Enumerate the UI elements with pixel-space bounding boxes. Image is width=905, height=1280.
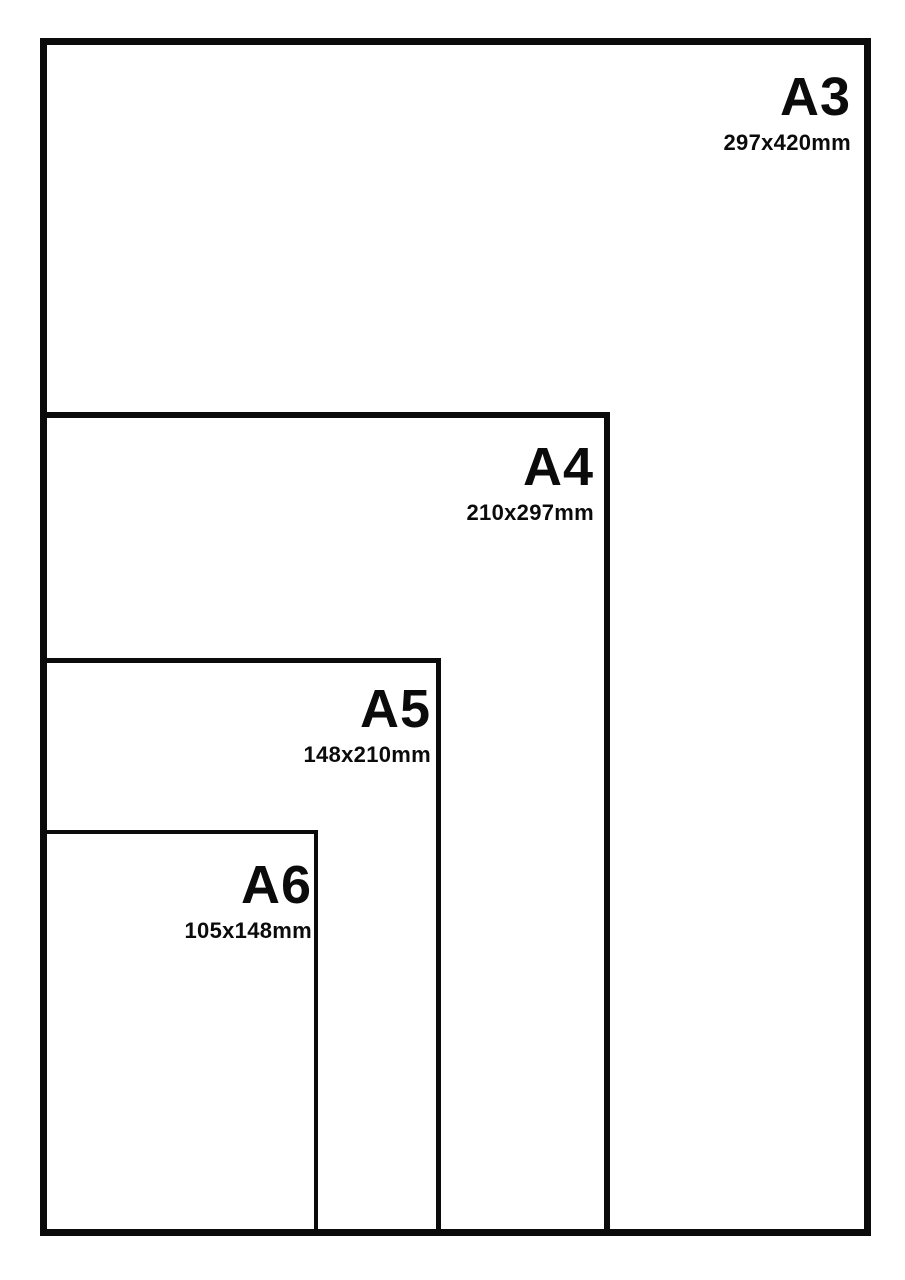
size-dimensions-a6: 105x148mm	[185, 920, 312, 942]
label-a6: A6 105x148mm	[185, 858, 312, 942]
size-name-a4: A4	[467, 440, 594, 494]
size-name-a6: A6	[185, 858, 312, 912]
label-a5: A5 148x210mm	[304, 682, 431, 766]
size-name-a3: A3	[724, 70, 851, 124]
label-a3: A3 297x420mm	[724, 70, 851, 154]
label-a4: A4 210x297mm	[467, 440, 594, 524]
paper-size-diagram: A3 297x420mm A4 210x297mm A5 148x210mm A…	[0, 0, 905, 1280]
size-dimensions-a4: 210x297mm	[467, 502, 594, 524]
size-dimensions-a3: 297x420mm	[724, 132, 851, 154]
size-dimensions-a5: 148x210mm	[304, 744, 431, 766]
size-name-a5: A5	[304, 682, 431, 736]
